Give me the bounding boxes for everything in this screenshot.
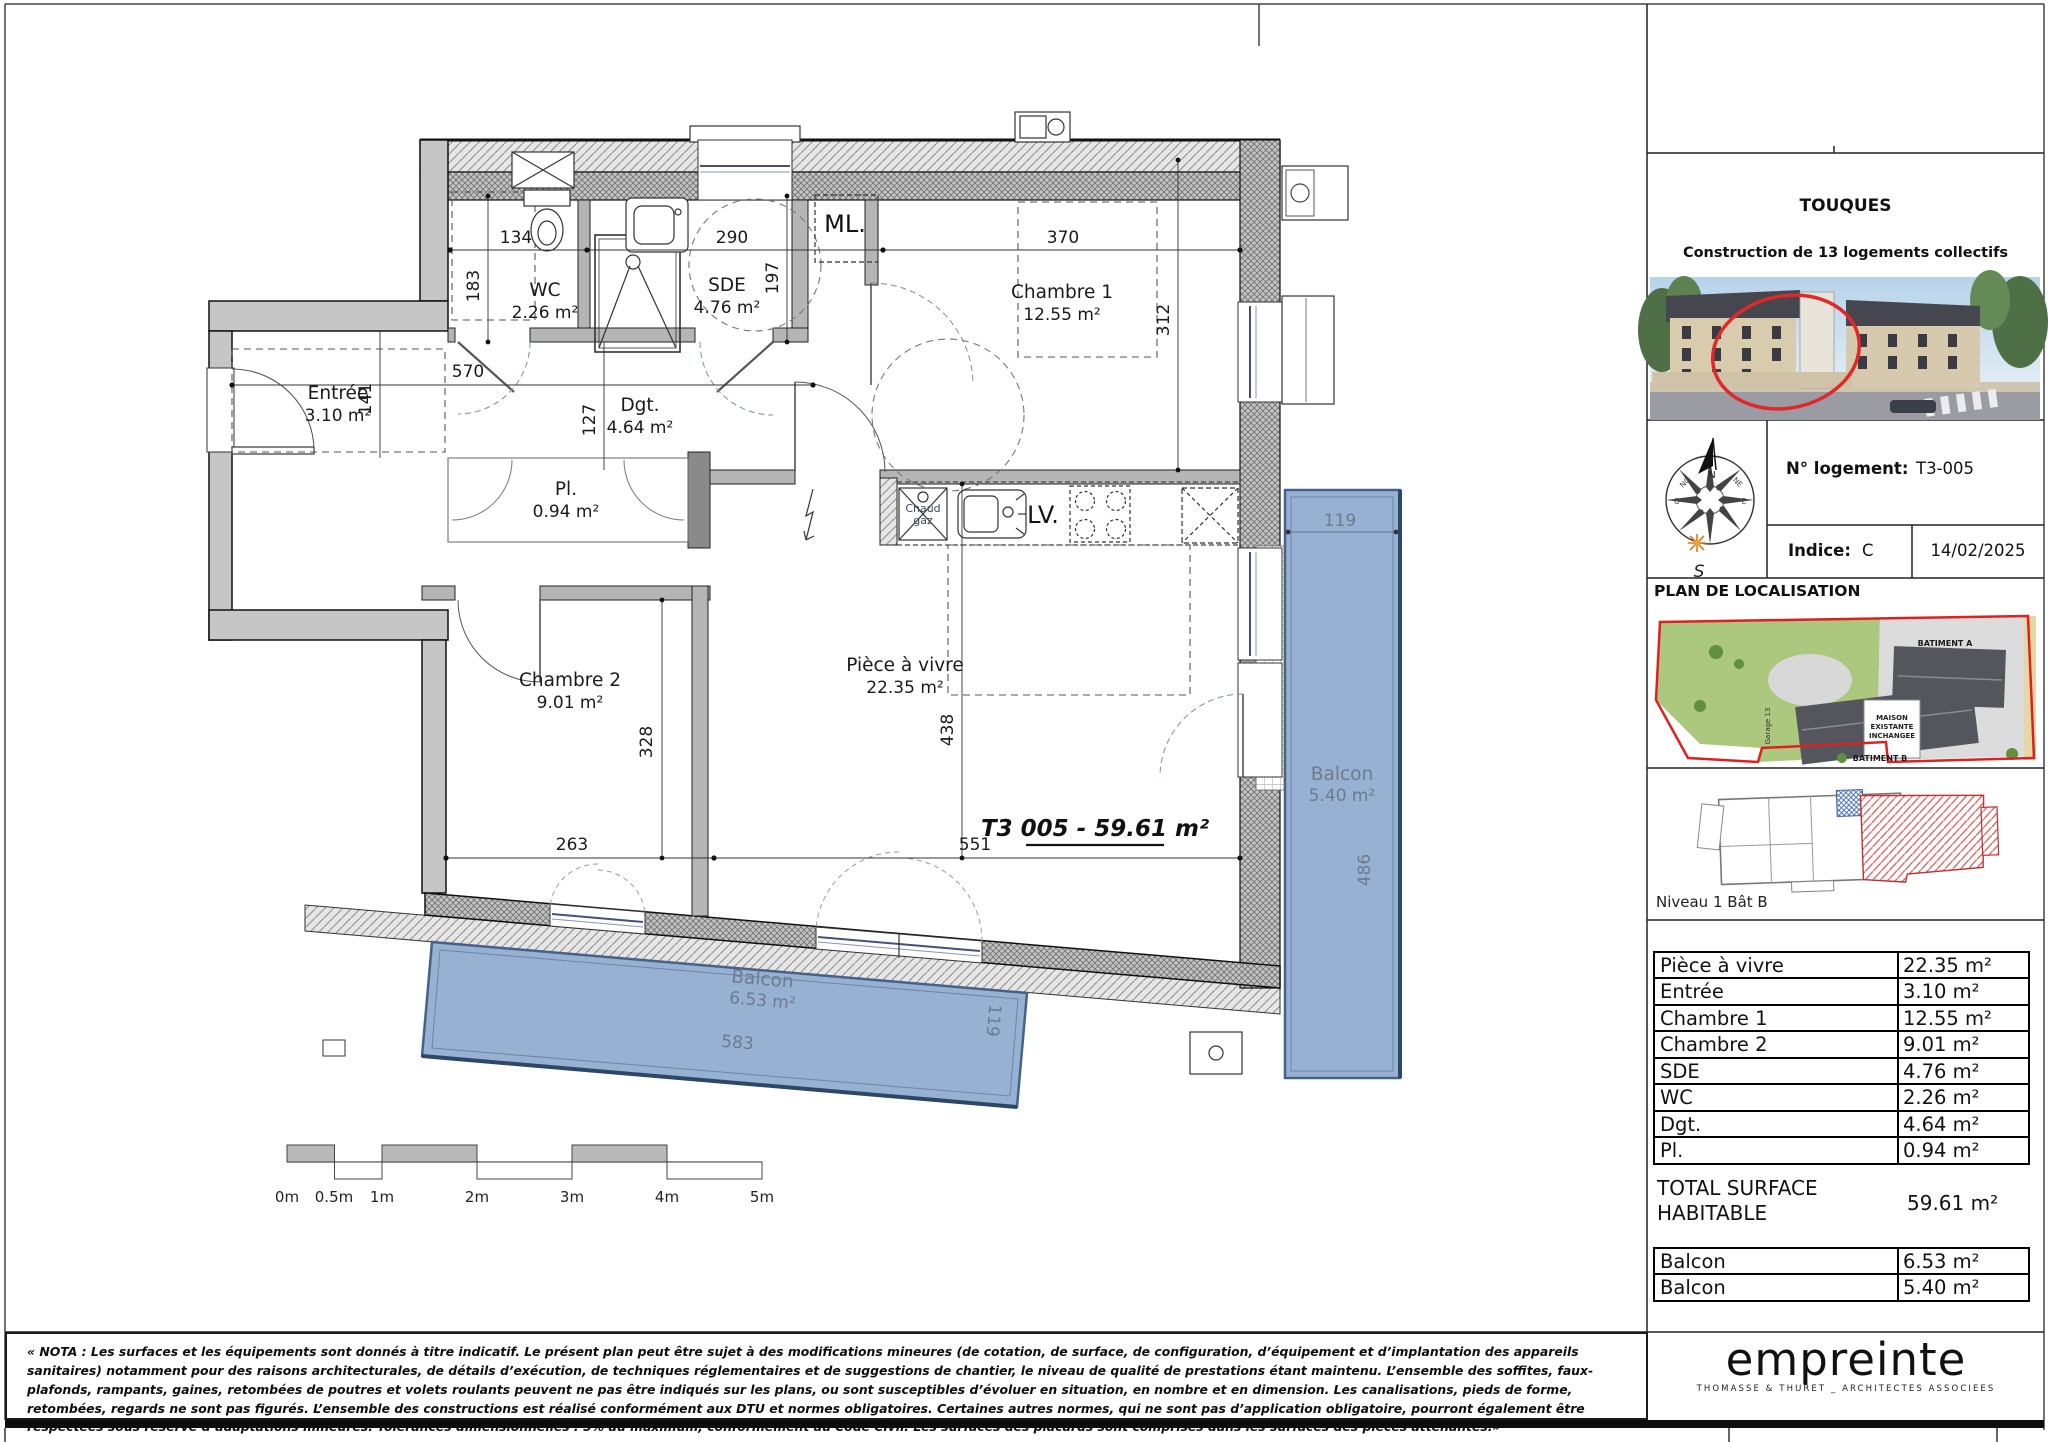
total-surface-block: TOTAL SURFACE HABITABLE 59.61 m² bbox=[1653, 1172, 2030, 1234]
row-value: 2.26 m² bbox=[1899, 1085, 2028, 1110]
project-city: TOUQUES bbox=[1647, 196, 2044, 216]
compass-e: E bbox=[1742, 497, 1747, 506]
row-value: 9.01 m² bbox=[1899, 1032, 2028, 1057]
table-row: SDE4.76 m² bbox=[1653, 1057, 2030, 1086]
row-label: WC bbox=[1655, 1085, 1899, 1110]
placard-niche bbox=[448, 458, 688, 542]
dim-entree-width: 570 bbox=[452, 362, 484, 382]
dimension-lines bbox=[232, 160, 1240, 858]
table-row: Chambre 112.55 m² bbox=[1653, 1004, 2030, 1033]
unit-label: T3 005 - 59.61 m² bbox=[981, 816, 1209, 842]
balcony1-width: 119 bbox=[982, 1003, 1005, 1037]
table-row: Pièce à vivre22.35 m² bbox=[1653, 951, 2030, 980]
surface-table: Pièce à vivre22.35 m² Entrée3.10 m² Cham… bbox=[1653, 953, 2030, 1165]
row-label: Chambre 1 bbox=[1655, 1006, 1899, 1031]
niveau-caption: Niveau 1 Bât B bbox=[1656, 893, 1768, 911]
total-label: TOTAL SURFACE HABITABLE bbox=[1653, 1172, 1907, 1234]
table-row: Pl.0.94 m² bbox=[1653, 1136, 2030, 1165]
row-label: Dgt. bbox=[1655, 1112, 1899, 1137]
room-dgt-name: Dgt. bbox=[620, 395, 659, 416]
scale-5m: 5m bbox=[750, 1188, 774, 1206]
table-row: Entrée3.10 m² bbox=[1653, 977, 2030, 1006]
room-ch1-area: 12.55 m² bbox=[1023, 305, 1100, 325]
room-ch2-name: Chambre 2 bbox=[519, 670, 621, 691]
room-pl-name: Pl. bbox=[555, 479, 577, 500]
batiment-b-label: BATIMENT B bbox=[1853, 754, 1908, 763]
row-label: Balcon bbox=[1655, 1275, 1899, 1300]
balcony2-length: 486 bbox=[1355, 854, 1375, 886]
row-label: Balcon bbox=[1655, 1249, 1899, 1274]
scale-0m: 0m bbox=[275, 1188, 299, 1206]
table-row: Chambre 29.01 m² bbox=[1653, 1030, 2030, 1059]
project-photo bbox=[1638, 270, 2048, 422]
logement-number-label: N° logement: bbox=[1786, 459, 1908, 478]
indice-label: Indice: bbox=[1788, 541, 1851, 560]
row-label: Pièce à vivre bbox=[1655, 953, 1899, 978]
floor-plan: 134 290 370 183 197 312 570 141 127 263 … bbox=[207, 112, 1400, 1107]
dim-wc-width: 134 bbox=[500, 228, 532, 248]
dimension-dots bbox=[229, 158, 1242, 861]
row-label: SDE bbox=[1655, 1059, 1899, 1084]
compass-rose: N NO NE O E S bbox=[1666, 438, 1754, 582]
architect-logo: empreinte THOMASSE & THURET _ ARCHITECTE… bbox=[1648, 1332, 2044, 1420]
balcony1-length: 583 bbox=[720, 1032, 754, 1055]
dim-ch2-depth: 328 bbox=[637, 726, 657, 758]
label-lv: LV. bbox=[1027, 501, 1059, 529]
compass-no: NO bbox=[1678, 475, 1693, 490]
scale-05m: 0.5m bbox=[315, 1188, 353, 1206]
scale-bar: 0m 0.5m 1m 2m 3m 4m 5m bbox=[275, 1145, 774, 1206]
label-ml: ML. bbox=[824, 210, 866, 238]
row-label: Chambre 2 bbox=[1655, 1032, 1899, 1057]
row-value: 3.10 m² bbox=[1899, 979, 2028, 1004]
architect-plan-page: { "header": {"city": "TOUQUES", "project… bbox=[0, 0, 2048, 1442]
room-dgt-area: 4.64 m² bbox=[607, 418, 674, 438]
room-ch1-name: Chambre 1 bbox=[1011, 282, 1113, 303]
row-value: 6.53 m² bbox=[1899, 1249, 2028, 1274]
plan-date: 14/02/2025 bbox=[1912, 541, 2044, 560]
dim-ch1-depth: 312 bbox=[1154, 304, 1174, 336]
exterior-walls bbox=[209, 140, 1280, 988]
dim-dgt-width: 127 bbox=[580, 404, 600, 436]
batiment-a-label: BATIMENT A bbox=[1918, 639, 1973, 648]
row-value: 4.64 m² bbox=[1899, 1112, 2028, 1137]
logo-tagline: THOMASSE & THURET _ ARCHITECTES ASSOCIEE… bbox=[1648, 1384, 2044, 1394]
room-wc-name: WC bbox=[529, 280, 560, 301]
dim-sde-depth: 197 bbox=[763, 262, 783, 294]
balcony2-area: 5.40 m² bbox=[1309, 786, 1376, 806]
scale-3m: 3m bbox=[560, 1188, 584, 1206]
row-value: 5.40 m² bbox=[1899, 1275, 2028, 1300]
nota-disclaimer: « NOTA : Les surfaces et les équipements… bbox=[5, 1332, 1648, 1420]
dim-wc-depth: 183 bbox=[464, 270, 484, 302]
room-ch2-area: 9.01 m² bbox=[537, 693, 604, 713]
room-pl-area: 0.94 m² bbox=[533, 502, 600, 522]
row-value: 4.76 m² bbox=[1899, 1059, 2028, 1084]
row-value: 22.35 m² bbox=[1899, 953, 2028, 978]
balcony2-name: Balcon bbox=[1311, 764, 1373, 785]
site-plan: BATIMENT A BATIMENT B MAISON EXISTANTE I… bbox=[1656, 616, 2036, 765]
compass-n: N bbox=[1708, 470, 1715, 481]
garage-label: Garage 13 bbox=[1764, 708, 1772, 745]
logement-number-value: T3-005 bbox=[1916, 459, 1974, 478]
scale-4m: 4m bbox=[655, 1188, 679, 1206]
project-title: Construction de 13 logements collectifs bbox=[1647, 245, 2044, 261]
room-living-area: 22.35 m² bbox=[866, 678, 943, 698]
room-living-name: Pièce à vivre bbox=[846, 655, 964, 676]
row-label: Entrée bbox=[1655, 979, 1899, 1004]
row-label: Pl. bbox=[1655, 1138, 1899, 1163]
logo-name: empreinte bbox=[1648, 1336, 2044, 1384]
maison-label-1: MAISON bbox=[1876, 714, 1908, 722]
localisation-title: PLAN DE LOCALISATION bbox=[1654, 582, 1860, 600]
table-row: Balcon6.53 m² bbox=[1653, 1247, 2030, 1276]
compass-s: S bbox=[1694, 562, 1705, 582]
indice-value: C bbox=[1862, 541, 1874, 560]
row-value: 12.55 m² bbox=[1899, 1006, 2028, 1031]
maison-label-3: INCHANGEE bbox=[1869, 732, 1915, 740]
scale-2m: 2m bbox=[465, 1188, 489, 1206]
row-value: 0.94 m² bbox=[1899, 1138, 2028, 1163]
maison-label-2: EXISTANTE bbox=[1871, 723, 1914, 731]
balcony-table: Balcon6.53 m² Balcon5.40 m² bbox=[1653, 1249, 2030, 1302]
dim-sde-width: 290 bbox=[716, 228, 748, 248]
room-wc-area: 2.26 m² bbox=[512, 303, 579, 323]
room-entree-name: Entrée bbox=[308, 383, 369, 404]
level-thumbnail bbox=[1695, 785, 1999, 895]
dim-ch2-width: 263 bbox=[556, 835, 588, 855]
dim-ch1-width: 370 bbox=[1047, 228, 1079, 248]
label-chaud-2: gaz bbox=[913, 514, 933, 527]
table-row: WC2.26 m² bbox=[1653, 1083, 2030, 1112]
dim-living-depth: 438 bbox=[938, 714, 958, 746]
table-row: Balcon5.40 m² bbox=[1653, 1273, 2030, 1302]
balcony2-width: 119 bbox=[1324, 511, 1356, 531]
table-row: Dgt.4.64 m² bbox=[1653, 1110, 2030, 1139]
room-entree-area: 3.10 m² bbox=[305, 406, 372, 426]
compass-o: O bbox=[1674, 497, 1680, 506]
room-sde-name: SDE bbox=[708, 275, 746, 296]
total-value: 59.61 m² bbox=[1907, 1172, 2030, 1234]
scale-1m: 1m bbox=[370, 1188, 394, 1206]
room-sde-area: 4.76 m² bbox=[694, 298, 761, 318]
